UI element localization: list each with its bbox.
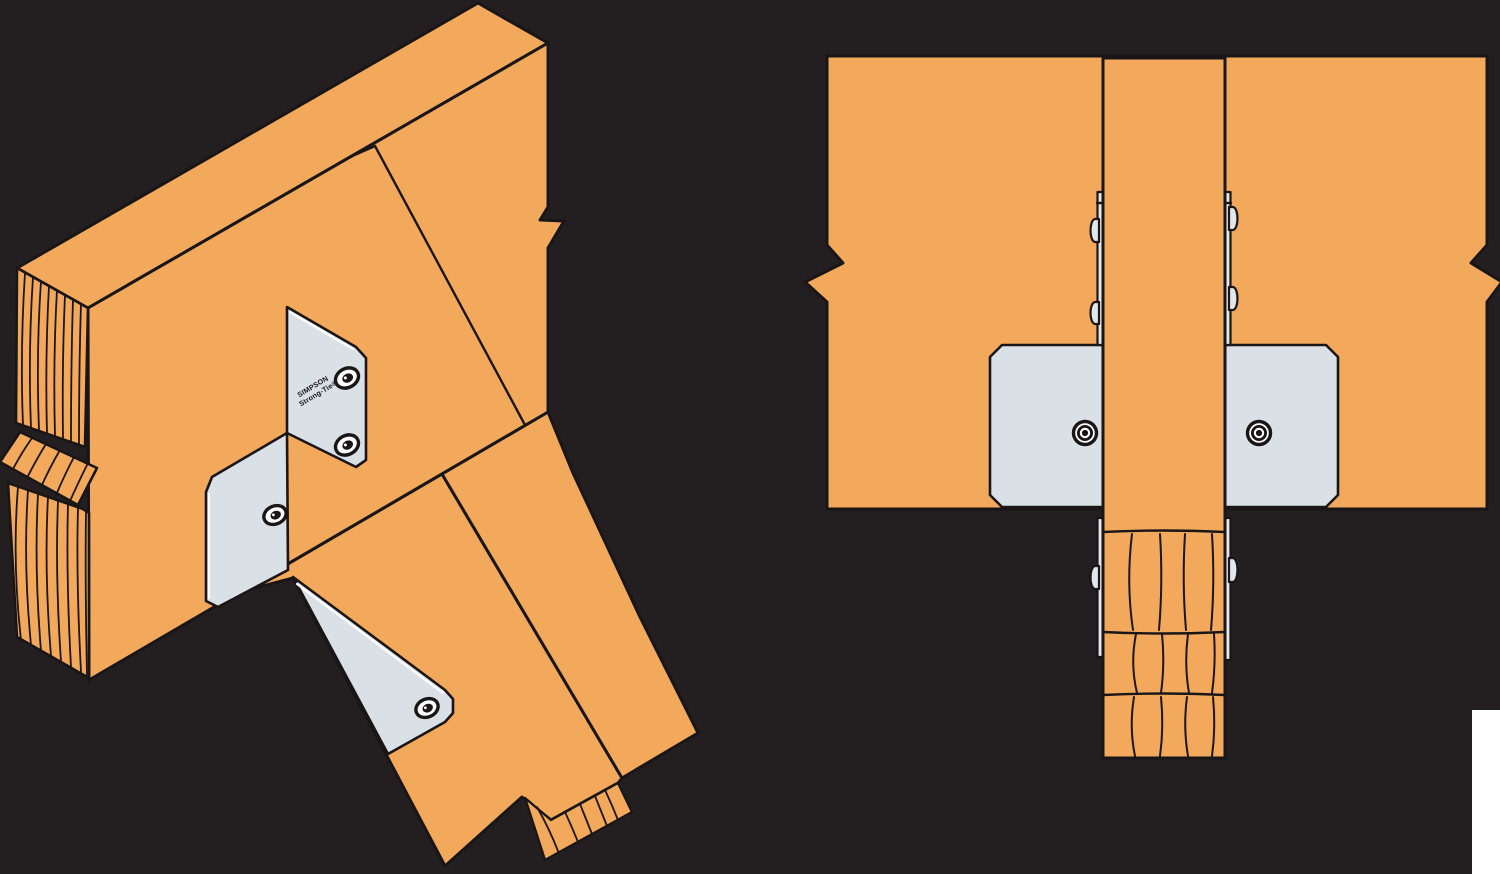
bolt-end-bump [1091,302,1100,324]
connector-illustration: SIMPSON Strong-Tie® [0,0,1500,874]
post-member [1103,58,1225,758]
bolt-end-bump [1091,566,1100,589]
bolt-end-bump [1229,287,1238,310]
white-corner-patch [1472,710,1500,874]
illustration-stage: SIMPSON Strong-Tie® [0,0,1500,874]
plate-bolt [1248,422,1271,445]
bolt-end-bump [1091,219,1100,242]
bolt-end-bump [1229,558,1238,582]
bolt-end-bump [1229,207,1238,230]
plate-bolt [1074,422,1097,445]
